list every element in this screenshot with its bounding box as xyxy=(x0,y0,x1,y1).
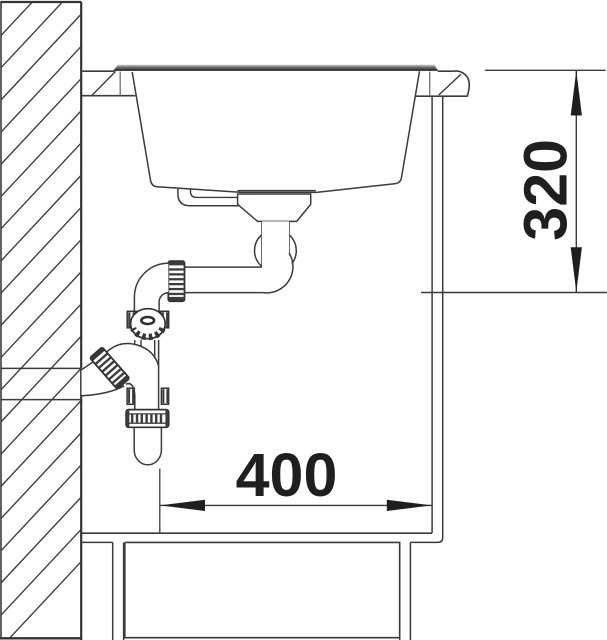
svg-text:400: 400 xyxy=(236,441,338,509)
svg-text:320: 320 xyxy=(512,139,580,241)
